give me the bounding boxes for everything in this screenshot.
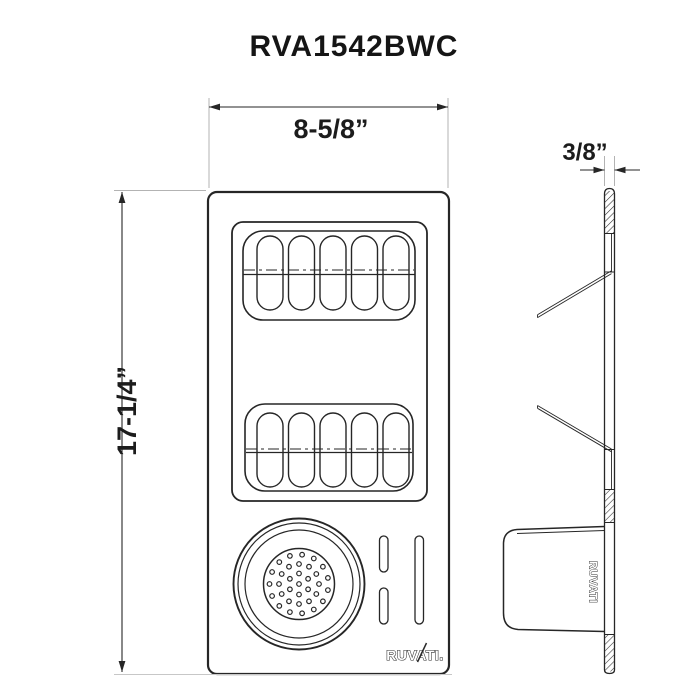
drawing-svg: RVA1542BWC: [0, 0, 700, 700]
side-hatch-top: [605, 191, 615, 234]
side-hatch-middle: [605, 490, 615, 523]
side-view: RUVATI: [504, 189, 615, 674]
technical-drawing-page: RVA1542BWC: [0, 0, 700, 700]
thickness-dimension: 3/8”: [562, 139, 640, 186]
arrowhead-inward-left: [594, 167, 605, 173]
width-dimension-label: 8-5/8”: [293, 114, 368, 144]
page-title: RVA1542BWC: [250, 30, 459, 63]
arrowhead-up: [119, 192, 126, 203]
arrowhead-left: [209, 104, 220, 111]
width-dimension: 8-5/8”: [209, 98, 448, 188]
arrowhead-inward-right: [615, 167, 626, 173]
arrowhead-down: [119, 661, 126, 672]
side-colander-profile: RUVATI: [504, 527, 605, 632]
side-hatch-bottom: [605, 635, 615, 672]
thickness-dimension-label: 3/8”: [562, 139, 607, 166]
arrowhead-right: [437, 104, 448, 111]
front-logo-text: RUVATI.: [386, 647, 443, 663]
side-logo-text: RUVATI: [587, 561, 599, 603]
side-colander-rim: [517, 531, 605, 534]
front-view: RUVATI.: [208, 192, 449, 674]
side-board-profile: [605, 189, 615, 674]
side-bottom-rack-wire: [538, 406, 612, 452]
side-top-rack-wire: [538, 271, 612, 318]
height-dimension-label: 17-1/4”: [112, 366, 142, 456]
